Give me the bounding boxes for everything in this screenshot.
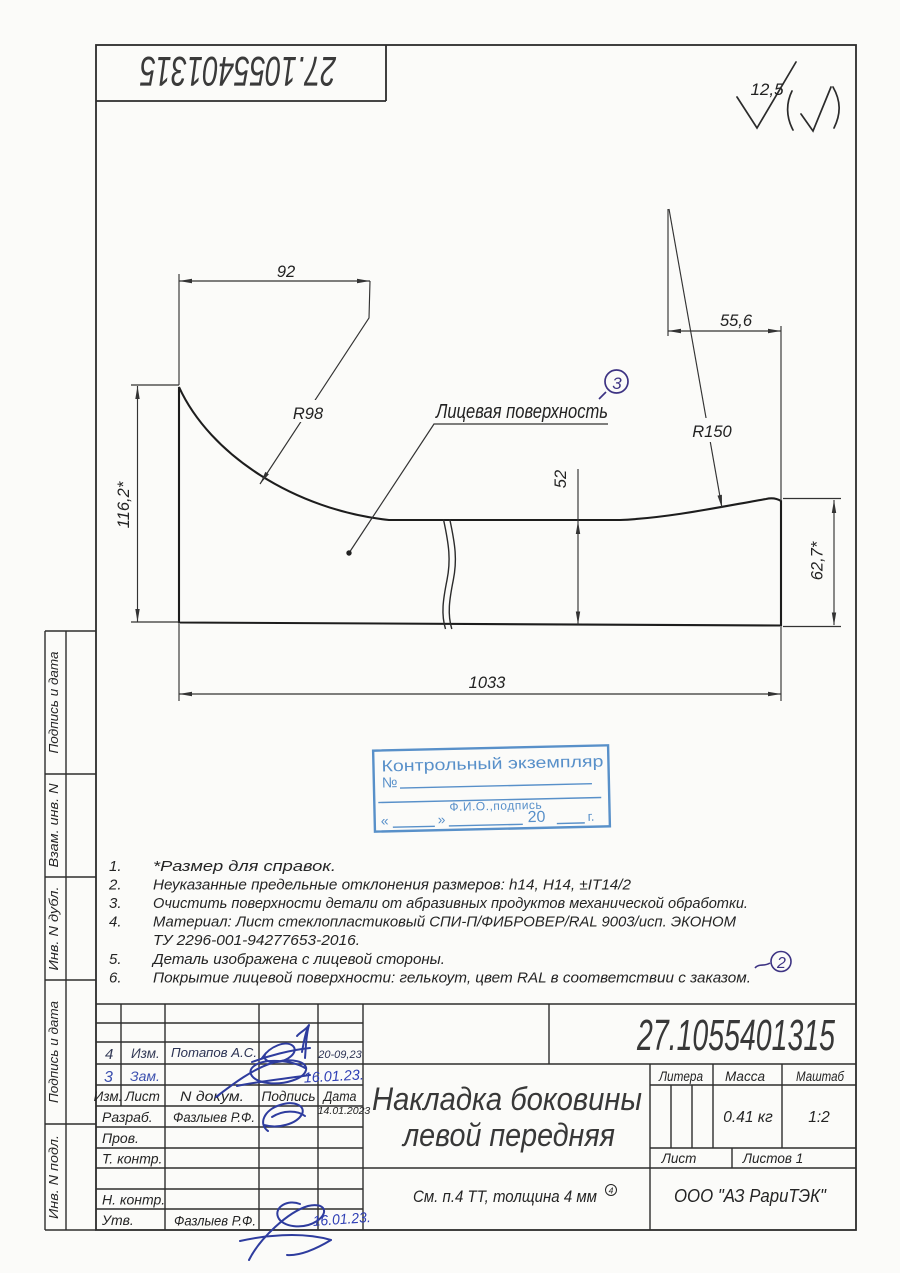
svg-text:Подпись и дата: Подпись и дата <box>46 1001 61 1103</box>
svg-text:Лист: Лист <box>124 1089 160 1104</box>
svg-text:Потапов А.С.: Потапов А.С. <box>171 1045 257 1060</box>
svg-text:14.01.2023: 14.01.2023 <box>318 1105 371 1117</box>
svg-text:Инв. N подл.: Инв. N подл. <box>46 1135 61 1219</box>
svg-text:ООО "АЗ РариТЭК": ООО "АЗ РариТЭК" <box>674 1186 827 1206</box>
svg-text:Литера: Литера <box>658 1069 703 1084</box>
svg-text:12,5: 12,5 <box>750 80 784 99</box>
svg-text:Изм.: Изм. <box>94 1089 123 1104</box>
svg-text:16.01.23.: 16.01.23. <box>303 1067 364 1086</box>
svg-text:116,2*: 116,2* <box>115 481 133 528</box>
svg-text:3: 3 <box>104 1069 113 1086</box>
svg-text:R150: R150 <box>692 423 732 441</box>
svg-text:»: » <box>438 811 446 827</box>
svg-text:20-09,23: 20-09,23 <box>317 1049 362 1061</box>
svg-text:См. п.4 ТТ, толщина 4 мм: См. п.4 ТТ, толщина 4 мм <box>413 1188 597 1206</box>
svg-text:Зам.: Зам. <box>130 1068 160 1084</box>
svg-text:Утв.: Утв. <box>101 1212 134 1228</box>
svg-text:3: 3 <box>612 374 622 393</box>
svg-text:Т. контр.: Т. контр. <box>102 1151 162 1167</box>
svg-text:Материал: Лист стеклопластиков: Материал: Лист стеклопластиковый СПИ-П/Ф… <box>153 914 736 931</box>
svg-text:Дата: Дата <box>322 1089 357 1104</box>
svg-text:Разраб.: Разраб. <box>102 1109 153 1125</box>
svg-text:Подпись: Подпись <box>262 1089 316 1104</box>
svg-text:4: 4 <box>105 1046 113 1063</box>
svg-text:левой передняя: левой передняя <box>401 1117 615 1153</box>
svg-text:Фазлыев Р.Ф.: Фазлыев Р.Ф. <box>173 1109 255 1125</box>
svg-text:20: 20 <box>527 809 545 826</box>
svg-text:4.: 4. <box>109 914 122 931</box>
svg-text:0.41 кг: 0.41 кг <box>723 1109 773 1126</box>
svg-text:ТУ 2296-001-94277653-2016.: ТУ 2296-001-94277653-2016. <box>153 932 360 949</box>
svg-text:г.: г. <box>587 809 594 824</box>
svg-text:№: № <box>382 775 398 791</box>
svg-text:62,7*: 62,7* <box>809 541 827 580</box>
svg-text:Инв. N дубл.: Инв. N дубл. <box>46 887 61 971</box>
svg-text:R98: R98 <box>293 405 324 423</box>
svg-text:Масса: Масса <box>725 1069 765 1084</box>
svg-text:92: 92 <box>277 263 295 281</box>
svg-text:«: « <box>381 812 389 828</box>
svg-text:N докум.: N докум. <box>180 1089 244 1104</box>
svg-text:Деталь изображена с лицевой ст: Деталь изображена с лицевой стороны. <box>151 951 445 968</box>
svg-text:3.: 3. <box>109 895 122 912</box>
svg-text:Неуказанные предельные отклоне: Неуказанные предельные отклонения размер… <box>153 877 632 894</box>
svg-text:Изм.: Изм. <box>131 1046 160 1061</box>
svg-text:Лицевая поверхность: Лицевая поверхность <box>434 401 608 423</box>
svg-text:1:2: 1:2 <box>808 1109 830 1126</box>
svg-text:Подпись и дата: Подпись и дата <box>46 652 61 754</box>
svg-text:52: 52 <box>552 470 570 488</box>
svg-text:55,6: 55,6 <box>720 312 753 330</box>
svg-text:Фазлыев Р.Ф.: Фазлыев Р.Ф. <box>174 1213 256 1229</box>
svg-text:Пров.: Пров. <box>102 1130 139 1146</box>
svg-text:2: 2 <box>776 955 786 972</box>
svg-text:5.: 5. <box>109 951 122 968</box>
svg-text:1033: 1033 <box>469 674 507 692</box>
svg-text:2.: 2. <box>108 877 122 894</box>
svg-text:Контрольный экземпляр: Контрольный экземпляр <box>381 753 603 775</box>
svg-text:Маштаб: Маштаб <box>796 1069 844 1084</box>
svg-text:*Размер для справок.: *Размер для справок. <box>153 858 336 875</box>
svg-text:27.1055401315: 27.1055401315 <box>140 48 337 95</box>
svg-text:Взам. инв. N: Взам. инв. N <box>46 783 61 868</box>
svg-text:Очистить поверхности детали от: Очистить поверхности детали от абразивны… <box>153 895 748 912</box>
svg-text:4: 4 <box>609 1186 614 1196</box>
svg-text:1.: 1. <box>109 858 122 875</box>
svg-text:27.1055401315: 27.1055401315 <box>636 1011 835 1060</box>
svg-text:Накладка боковины: Накладка боковины <box>372 1081 642 1117</box>
svg-text:6.: 6. <box>109 970 122 987</box>
svg-text:Лист: Лист <box>661 1151 697 1166</box>
svg-text:Н. контр.: Н. контр. <box>102 1192 165 1208</box>
svg-text:Покрытие лицевой поверхности:: Покрытие лицевой поверхности: гелькоут, … <box>153 970 751 987</box>
svg-text:Листов 1: Листов 1 <box>742 1151 803 1166</box>
